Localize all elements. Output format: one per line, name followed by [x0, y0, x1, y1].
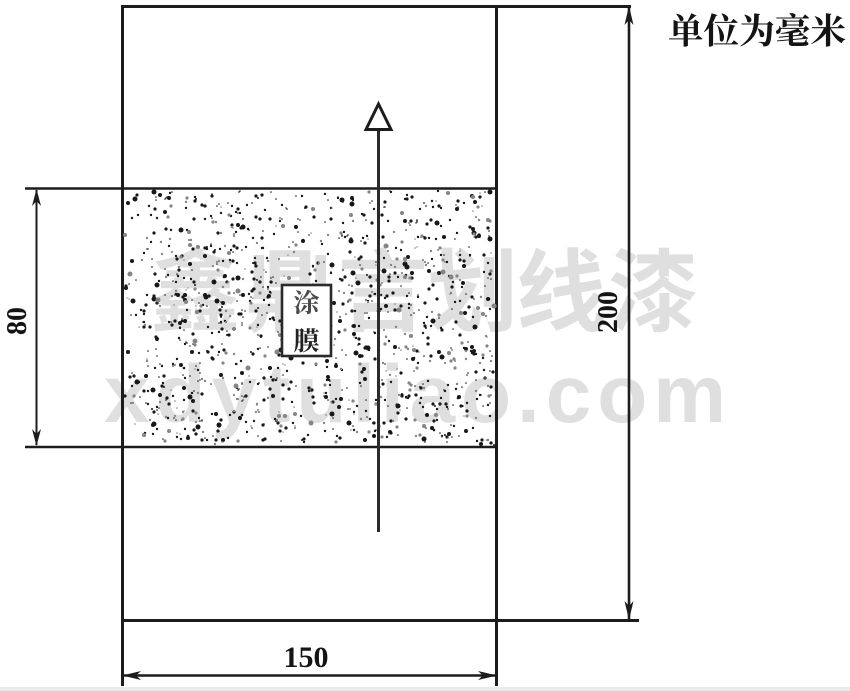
svg-text:80: 80 [2, 307, 33, 335]
svg-text:150: 150 [284, 641, 329, 674]
svg-text:200: 200 [593, 291, 624, 333]
